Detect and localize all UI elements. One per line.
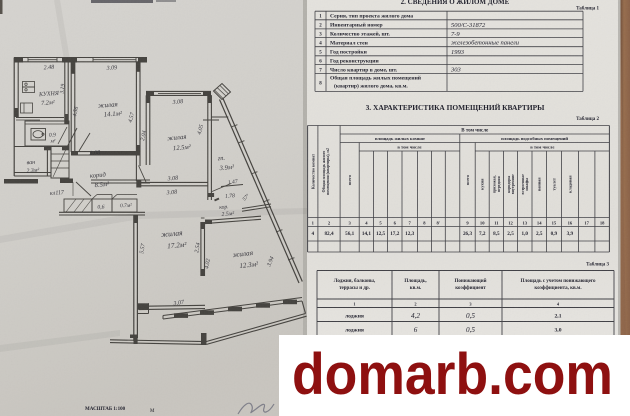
svg-text:domarb.com: domarb.com — [292, 342, 613, 407]
svg-text:МАСШТАБ 1:100: МАСШТАБ 1:100 — [85, 407, 126, 412]
svg-text:М: М — [150, 409, 155, 414]
